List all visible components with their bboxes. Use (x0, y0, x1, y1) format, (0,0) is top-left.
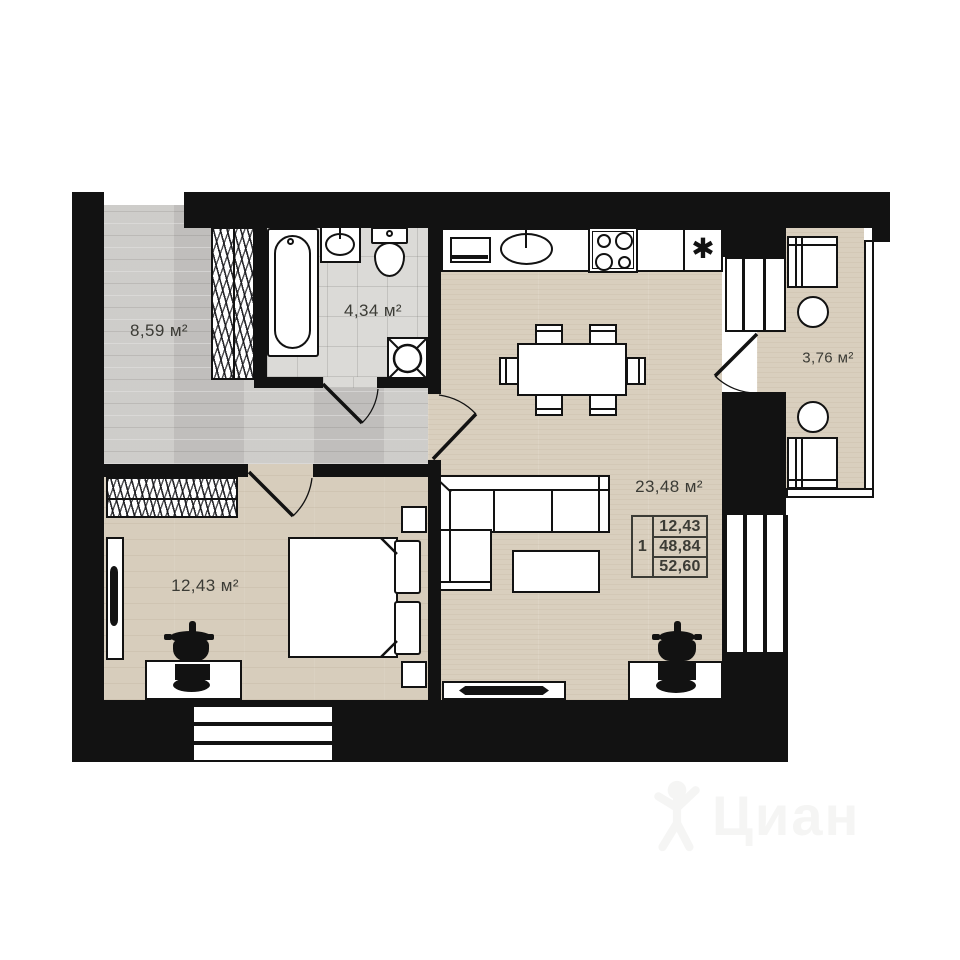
bedroom-wardrobe (106, 477, 238, 518)
burner (618, 256, 631, 269)
bedroom-desk-seat (173, 678, 210, 692)
living-chair-body (658, 640, 696, 661)
nightstand (401, 506, 427, 533)
bedroom-chair-armrest (206, 634, 214, 640)
sofa-armrest-bottom (436, 581, 490, 583)
window-pane (194, 726, 332, 741)
bedroom-area-label: 12,43 м² (171, 576, 239, 596)
tv-screen (459, 686, 549, 695)
burner (597, 234, 611, 248)
sofa-seat-divider (551, 489, 553, 531)
wardrobe-rail (108, 498, 236, 500)
wall-top-right-stub (872, 228, 890, 242)
dining-chair (499, 357, 519, 385)
pillow (394, 601, 421, 655)
sofa-top-arm (433, 475, 610, 533)
balcony-area-label: 3,76 м² (802, 350, 853, 367)
living-area-value: 12,43 (654, 517, 706, 536)
wall-hall-living (428, 228, 441, 394)
balcony-armchair (787, 437, 838, 489)
wall-bottom (72, 700, 788, 762)
nightstand (401, 661, 427, 688)
bedroom-window (194, 703, 332, 760)
wardrobe-rail (233, 229, 235, 378)
window-mullion (763, 259, 766, 330)
cian-watermark-text: Циан (712, 783, 860, 848)
wall-bathroom-bottom-right (377, 377, 441, 388)
living-chair-armrest (694, 634, 702, 640)
wall-balcony-divider-top (722, 228, 786, 257)
kitchen-sink-tap (525, 228, 527, 248)
bedroom-chair-body (173, 640, 209, 661)
sofa-back-line-top (451, 489, 608, 491)
sofa-back-line-left (449, 489, 451, 583)
hallway-area-label: 8,59 м² (130, 321, 188, 341)
bathroom-area-label: 4,34 м² (344, 301, 402, 321)
balcony-armchair (787, 236, 838, 288)
balcony-table (797, 296, 829, 328)
armchair-back-line (789, 244, 836, 246)
total-area-value: 52,60 (654, 556, 706, 576)
wall-hall-bedroom-left (104, 464, 248, 477)
unit-number: 1 (633, 517, 654, 576)
cian-watermark: Циан (646, 778, 860, 852)
wall-balcony-divider-bottom (722, 652, 788, 700)
bathroom-sink (320, 225, 361, 263)
floor-plan-canvas: ✱ (0, 0, 960, 960)
window-pane (194, 745, 332, 760)
washing-machine (387, 337, 428, 380)
balcony-door-window-unit (725, 257, 786, 332)
wall-bedroom-living (428, 460, 441, 700)
bathtub-basin (274, 235, 311, 349)
window-mullion (742, 259, 745, 330)
pillow (394, 540, 421, 594)
wall-top (184, 192, 890, 228)
living-room-window (722, 515, 788, 652)
bathtub-drain (287, 238, 294, 245)
living-kitchen-area-label: 23,48 м² (635, 477, 703, 497)
armchair-back-line (789, 479, 836, 481)
wall-bathroom-left (254, 228, 267, 388)
living-desk-seat (656, 678, 696, 693)
bedroom-chair-armrest (164, 634, 172, 640)
cian-person-icon (646, 778, 708, 852)
sofa-armrest-right (598, 477, 600, 531)
bedroom-wall-tv (110, 566, 118, 626)
dining-chair (626, 357, 646, 385)
bathroom-door-threshold (323, 377, 378, 388)
toilet-button (386, 230, 393, 237)
apartment-info-table: 1 12,43 48,84 52,60 (631, 515, 708, 578)
balcony-table (797, 401, 829, 433)
balcony-glazing-right (864, 240, 874, 498)
stove (588, 227, 638, 273)
window-pane (747, 515, 763, 652)
window-pane (194, 707, 332, 722)
counter-divider (683, 228, 685, 272)
appliance-handle (452, 255, 488, 259)
dining-chair (589, 394, 617, 416)
bathtub (267, 228, 319, 357)
burner (595, 253, 613, 271)
wall-left (72, 192, 104, 762)
living-chair-armrest (652, 634, 660, 640)
hallway-wardrobe (211, 227, 255, 380)
bed (288, 537, 398, 658)
burner (615, 232, 633, 250)
kitchen-appliance (450, 237, 491, 263)
dining-chair (535, 394, 563, 416)
wall-bathroom-bottom-left (254, 377, 323, 388)
fridge-symbol: ✱ (687, 232, 719, 266)
window-pane (727, 515, 743, 652)
window-pane (767, 515, 783, 652)
coffee-table (512, 550, 600, 593)
wall-balcony-divider-mid (722, 392, 786, 515)
dining-table (517, 343, 627, 396)
sofa-seat-divider (493, 489, 495, 531)
floor-area-value: 48,84 (654, 536, 706, 556)
balcony-glazing-bottom (786, 488, 874, 498)
wall-hall-bedroom-right (313, 464, 441, 477)
